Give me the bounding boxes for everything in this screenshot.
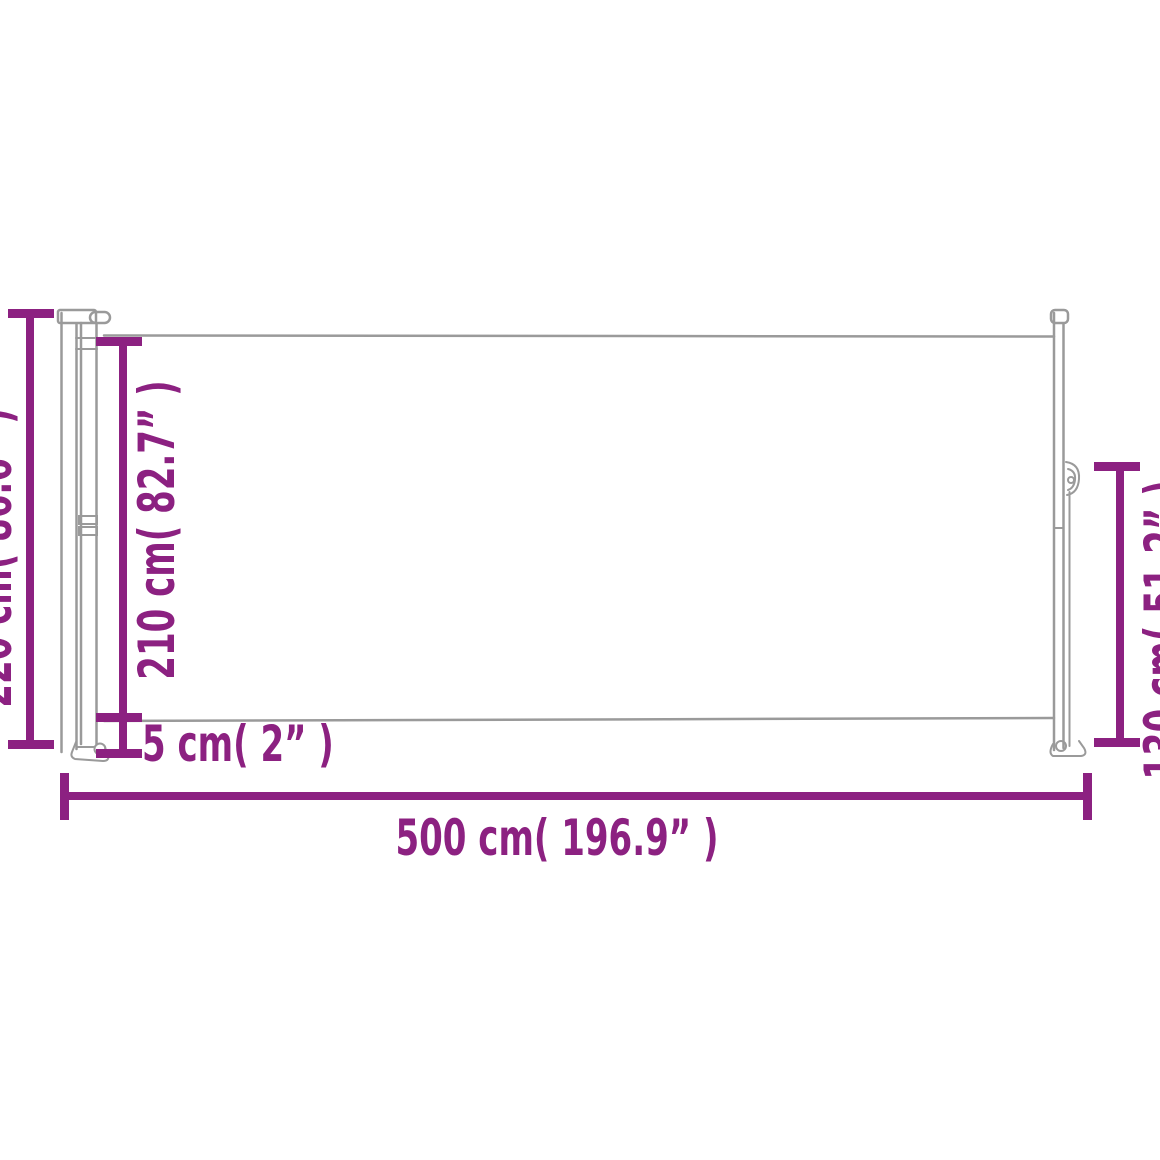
dimension-label-ground-clearance: 5 cm( 2” )	[142, 716, 334, 772]
dimension-cap	[1094, 462, 1140, 471]
dimension-label-height-end-post: 130 cm( 51.2” )	[1135, 480, 1160, 779]
dimension-cap	[8, 740, 54, 749]
dimension-label-height-fabric: 210 cm( 82.7” )	[129, 380, 185, 679]
dimension-cap	[1083, 773, 1092, 820]
dimension-cap	[96, 337, 142, 346]
awning-dimension-diagram: 220 cm( 86.6” ) 210 cm( 82.7” ) 5 cm( 2”…	[0, 0, 1160, 1160]
dimension-line	[64, 792, 1088, 800]
pull-handle	[1066, 462, 1079, 495]
end-post-foot	[1051, 741, 1086, 756]
dimension-cap	[96, 749, 142, 758]
dimension-cap	[96, 713, 142, 722]
dimension-cap	[60, 773, 69, 820]
dimension-line	[119, 342, 127, 758]
dimension-cap	[8, 309, 54, 318]
dimension-line	[1116, 467, 1124, 747]
cassette-post-outline	[58, 310, 110, 761]
dimension-label-height-total: 220 cm( 86.6” )	[0, 408, 22, 707]
dimension-label-length-total: 500 cm( 196.9” )	[395, 810, 718, 866]
end-post-outline	[1051, 310, 1086, 756]
dimension-line	[26, 313, 34, 745]
fabric-panel-outline	[104, 336, 1054, 722]
